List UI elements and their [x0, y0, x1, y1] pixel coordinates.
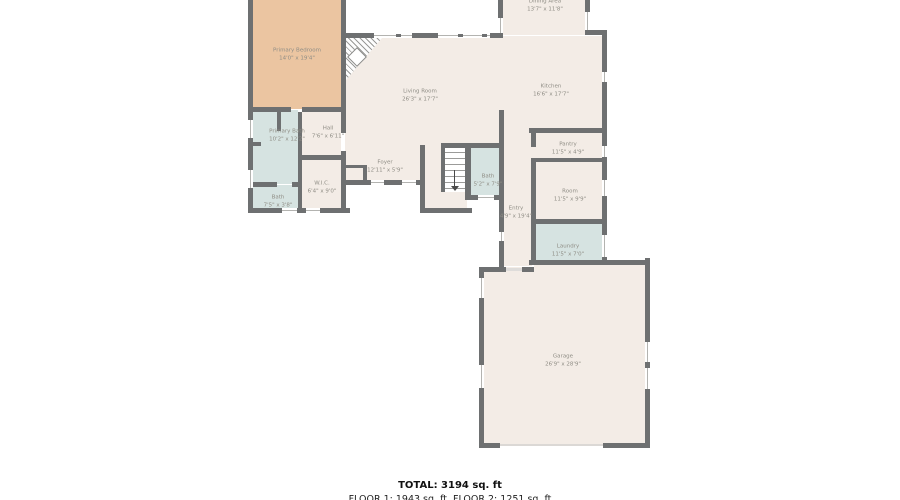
wall [529, 128, 607, 133]
window [585, 12, 590, 30]
entry-door [499, 232, 504, 241]
wall [479, 443, 500, 448]
window [479, 278, 484, 298]
window [478, 195, 494, 200]
room-label-kitchen: Kitchen16'6" x 17'7" [533, 83, 569, 98]
stair-direction-arrow [454, 170, 455, 186]
wall [531, 219, 607, 224]
window [645, 368, 650, 389]
window [602, 146, 607, 157]
total-area-text: TOTAL: 3194 sq. ft [0, 480, 900, 491]
room-label-primary-bath: Primary Bath10'2" x 12'2" [269, 128, 305, 143]
room-label-living-room: Living Room26'3" x 17'7" [402, 88, 438, 103]
wall [465, 143, 471, 200]
window [248, 120, 253, 138]
window-mullion [482, 34, 487, 37]
wall [341, 0, 346, 133]
wall [292, 182, 302, 187]
wall [248, 107, 291, 112]
wall [603, 443, 650, 448]
room-floor-closet [346, 167, 363, 181]
wall [529, 260, 650, 265]
garage-door [500, 444, 603, 446]
room-label-entry: Entry4'9" x 19'4" [500, 205, 532, 220]
floor-plan: Primary Bedroom14'0" x 19'4" Dining Area… [0, 0, 900, 500]
window [306, 208, 320, 213]
window [374, 33, 412, 38]
window [645, 342, 650, 362]
room-label-garage: Garage26'9" x 28'9" [545, 353, 581, 368]
wall [479, 267, 506, 272]
wall [531, 158, 607, 162]
window [498, 18, 503, 33]
wall [343, 165, 367, 168]
wall [248, 142, 261, 146]
room-label-pantry: Pantry11'5" x 4'9" [552, 141, 584, 156]
room-label-bath-1: Bath7'5" x 3'8" [264, 194, 293, 209]
wall [298, 112, 302, 213]
room-floor-primary-bath [252, 110, 298, 184]
window [479, 365, 484, 388]
wall [420, 145, 425, 213]
wall [441, 143, 504, 148]
room-label-primary-bedroom: Primary Bedroom14'0" x 19'4" [273, 47, 321, 62]
window [371, 180, 384, 185]
wall [585, 0, 590, 12]
window-mullion [396, 34, 401, 37]
room-label-hall: Hall7'6" x 6'11" [312, 125, 344, 140]
room-label-bath-2: Bath5'2" x 7'9" [474, 173, 503, 188]
wall [522, 267, 534, 272]
floor-areas-text: FLOOR 1: 1943 sq. ft. FLOOR 2: 1251 sq. … [0, 494, 900, 500]
room-label-dining-area: Dining Area13'7" x 11'8" [527, 0, 563, 14]
wall [499, 241, 504, 267]
room-label-room: Room11'5" x 9'9" [554, 188, 586, 203]
room-label-wic: W.I.C.6'4" x 9'0" [308, 180, 337, 195]
stair-direction-arrowhead [451, 186, 459, 191]
wall [441, 145, 445, 192]
wall [420, 208, 472, 213]
window-mullion [458, 34, 463, 37]
wall [585, 30, 607, 35]
window [602, 180, 607, 196]
window [248, 170, 253, 188]
wall [498, 0, 503, 18]
room-label-foyer: Foyer12'11" x 5'9" [367, 159, 403, 174]
wall [302, 107, 346, 112]
wall [298, 155, 345, 160]
window [602, 72, 607, 82]
garage-entry-door [506, 268, 522, 271]
room-label-laundry: Laundry11'5" x 7'0" [552, 243, 584, 258]
window [602, 235, 607, 257]
window [402, 180, 416, 185]
